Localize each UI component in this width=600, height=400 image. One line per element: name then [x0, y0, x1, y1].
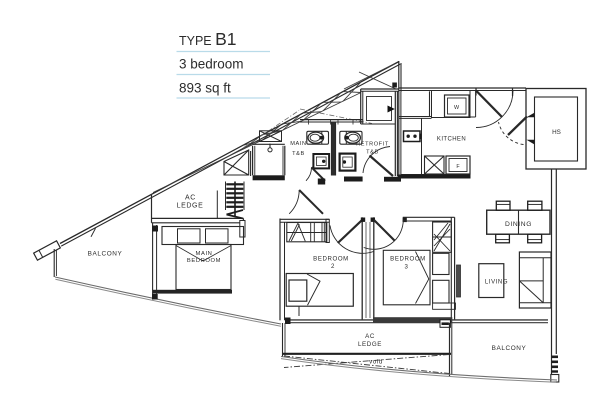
svg-text:2: 2 — [331, 263, 335, 270]
svg-text:BEDROOM: BEDROOM — [390, 256, 426, 263]
svg-text:MAIN: MAIN — [290, 141, 306, 147]
svg-text:AC: AC — [185, 195, 196, 202]
svg-text:RETROFIT: RETROFIT — [356, 142, 389, 148]
svg-text:BEDROOM: BEDROOM — [187, 258, 221, 264]
svg-text:KITCHEN: KITCHEN — [437, 137, 466, 143]
svg-text:3: 3 — [405, 264, 409, 271]
svg-text:BALCONY: BALCONY — [88, 251, 123, 258]
svg-text:DINING: DINING — [505, 221, 532, 228]
svg-text:893 sq ft: 893 sq ft — [179, 81, 231, 96]
svg-text:T&B: T&B — [292, 151, 305, 157]
svg-text:3 bedroom: 3 bedroom — [179, 57, 244, 72]
svg-text:AC: AC — [365, 333, 375, 340]
svg-text:BEDROOM: BEDROOM — [313, 255, 349, 262]
svg-text:LIVING: LIVING — [485, 279, 508, 285]
svg-text:LEDGE: LEDGE — [177, 202, 204, 209]
svg-text:HS: HS — [552, 129, 561, 136]
svg-text:LEDGE: LEDGE — [358, 341, 382, 348]
svg-text:void: void — [369, 359, 383, 366]
svg-text:MAIN: MAIN — [196, 251, 213, 257]
svg-text:BALCONY: BALCONY — [492, 345, 527, 352]
